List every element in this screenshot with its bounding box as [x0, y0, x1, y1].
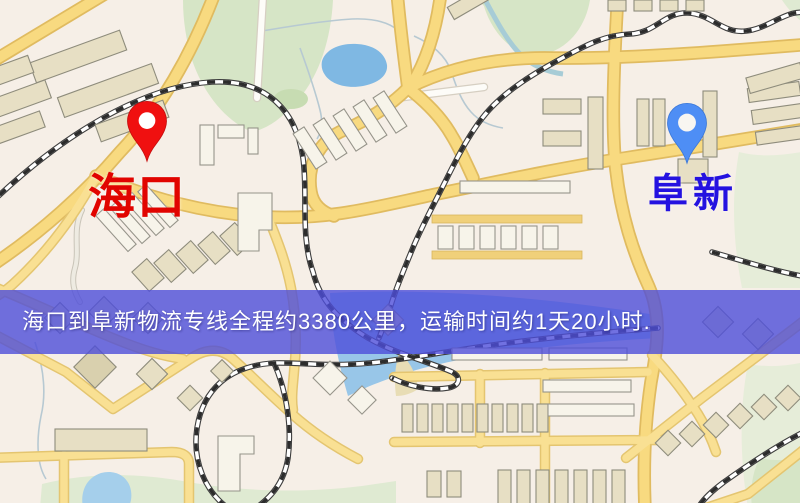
destination-pin[interactable] [664, 102, 710, 171]
route-info-text: 海口到阜新物流专线全程约3380公里，运输时间约1天20小时. [22, 290, 651, 354]
map-background [0, 0, 800, 503]
route-info-banner: 海口到阜新物流专线全程约3380公里，运输时间约1天20小时. [0, 290, 800, 354]
destination-label: 阜新 [648, 174, 738, 214]
destination-pin-shape [668, 103, 707, 163]
origin-label: 海口 [88, 174, 186, 222]
origin-pin-hole [139, 112, 156, 129]
map-screenshot: 海口 阜新 海口到阜新物流专线全程约3380公里，运输时间约1天20小时. [0, 0, 800, 503]
lake [322, 44, 387, 87]
origin-pin-shape [128, 101, 167, 161]
origin-pin[interactable] [124, 100, 170, 169]
destination-pin-hole [678, 114, 696, 132]
